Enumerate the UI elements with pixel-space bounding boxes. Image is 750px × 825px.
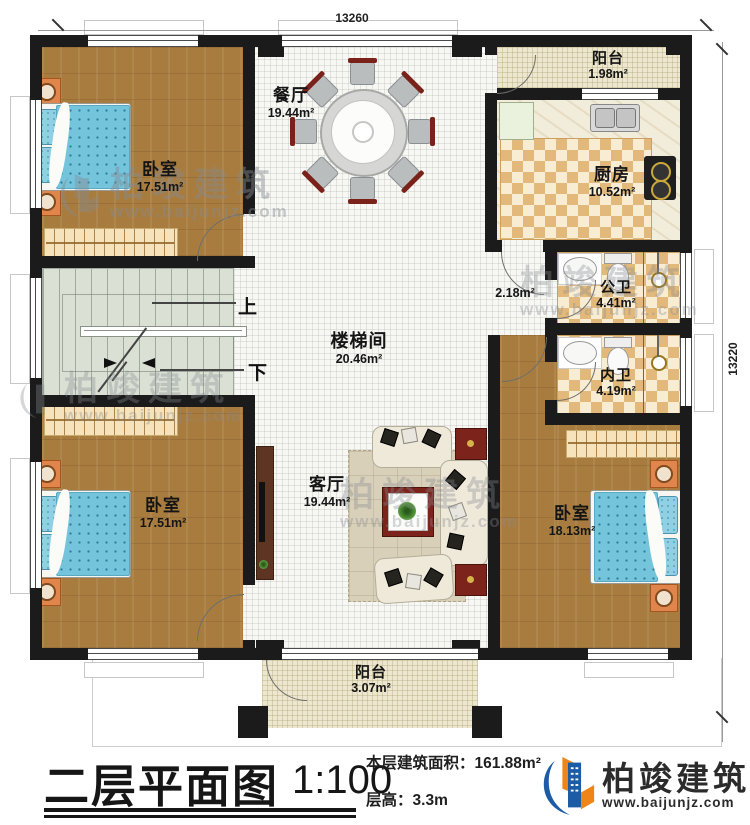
wall-segment (545, 400, 557, 413)
plant (259, 560, 268, 569)
wardrobe-rail (568, 442, 684, 444)
stove-burner (651, 162, 671, 182)
window-sill (694, 334, 714, 412)
window (582, 88, 658, 100)
floor-height-line: 层高：3.3m (366, 788, 448, 810)
window (30, 100, 42, 208)
fridge (499, 102, 534, 140)
dimension-line-right (722, 42, 723, 742)
stair-up-label: 上 (238, 292, 257, 319)
bedroom-br-floor (500, 335, 557, 648)
column (256, 640, 284, 660)
dimension-top-value: 13260 (322, 11, 382, 25)
room-label-bedroom-tl: 卧室 17.51m² (137, 160, 184, 194)
shower-divider (643, 252, 644, 323)
sink-basin (563, 257, 597, 281)
shower-divider (643, 335, 644, 413)
window (88, 35, 198, 47)
dining-table-center (352, 121, 374, 143)
wall-segment (658, 88, 692, 100)
shower-head (651, 272, 667, 288)
dining-chair (350, 177, 375, 200)
room-label-balcony-top: 阳台 1.98m² (588, 50, 628, 82)
room-label-corridor: 2.18m² (495, 286, 535, 300)
room-label-kitchen: 厨房 10.52m² (589, 165, 636, 199)
floor-height-label: 层高： (366, 792, 413, 809)
floor-area-line: 本层建筑面积：161.88m² (366, 751, 541, 773)
window (88, 648, 198, 660)
room-label-living: 客厅 19.44m² (304, 475, 351, 509)
window (588, 648, 668, 660)
wall-segment (485, 240, 502, 252)
sofa-pillow (447, 533, 465, 551)
kitchen-sink-basin (616, 108, 636, 128)
window-sill (10, 96, 30, 214)
wardrobe (44, 406, 178, 436)
column (258, 35, 284, 57)
dining-chair (294, 119, 317, 144)
floor-height-value: 3.3m (413, 792, 448, 809)
wardrobe-rail (46, 242, 174, 244)
wall-segment (488, 335, 500, 660)
window (30, 462, 42, 588)
side-table (455, 428, 487, 460)
dimension-right-value: 13220 (726, 329, 740, 389)
wall-segment (485, 93, 497, 252)
window-sill (84, 662, 204, 678)
column (452, 35, 482, 57)
stair-railing-line (84, 330, 242, 331)
dimension-line-top (38, 30, 714, 31)
room-label-bedroom-br: 卧室 18.13m² (549, 504, 596, 538)
tv (259, 482, 265, 542)
window (282, 648, 478, 660)
coffee-table-plant (398, 502, 416, 520)
stair-down-label: 下 (248, 358, 267, 385)
shower-stem (657, 335, 659, 357)
window (680, 338, 692, 406)
sofa-pillow (405, 573, 422, 590)
column (238, 706, 268, 738)
kitchen-sink-basin (595, 108, 615, 128)
wardrobe-rail (46, 419, 174, 421)
shower-head (651, 355, 667, 371)
stove-burner (651, 180, 671, 200)
wall-segment (243, 640, 255, 660)
side-table (455, 564, 487, 596)
wall-segment (545, 323, 692, 335)
nightstand (650, 460, 678, 488)
wall-segment (485, 35, 497, 55)
stair-arrow-line-down (160, 369, 244, 371)
floor-plan-page: 上 下 (0, 0, 750, 825)
room-label-dining: 餐厅 19.44m² (268, 86, 315, 120)
room-label-bedroom-bl: 卧室 17.51m² (140, 496, 187, 530)
shower-stem (657, 252, 659, 274)
window (282, 35, 452, 47)
stair-arrow-line-up (152, 302, 236, 304)
title-underline (44, 808, 356, 812)
window (680, 253, 692, 318)
room-label-stairwell: 楼梯间 20.46m² (331, 331, 388, 366)
stair-arrowhead (104, 358, 117, 368)
window (30, 278, 42, 378)
stair-railing (80, 326, 247, 337)
stair-arrowhead (142, 358, 155, 368)
wall-segment (243, 35, 255, 214)
window-sill (694, 249, 714, 324)
brand-name: 柏竣建筑 (602, 752, 750, 800)
wall-segment (545, 413, 692, 425)
plan-title: 二层平面图 (44, 750, 279, 815)
column (666, 35, 692, 55)
column (472, 706, 502, 738)
room-label-bath-public: 公卫 4.41m² (596, 279, 636, 311)
room-label-balcony-bottom: 阳台 3.07m² (351, 664, 391, 696)
floor-area-value: 161.88m² (475, 755, 541, 772)
window-sill (10, 274, 30, 384)
nightstand (650, 584, 678, 612)
wall-segment (543, 240, 692, 252)
wall-segment (545, 252, 557, 280)
wall-segment (243, 395, 255, 585)
room-label-bath-private: 内卫 4.19m² (596, 367, 636, 399)
dining-chair (350, 62, 375, 85)
brand-logo-icon (540, 750, 596, 825)
floor-area-label: 本层建筑面积： (366, 755, 475, 772)
window-sill (84, 20, 204, 35)
sofa-pillow (401, 427, 418, 444)
dining-chair (408, 119, 431, 144)
window-sill (10, 458, 30, 594)
wall-segment (30, 395, 255, 407)
wardrobe (566, 430, 688, 458)
brand-website: www.baijunjz.com (602, 795, 735, 810)
title-underline (44, 815, 356, 818)
window-sill (584, 662, 674, 678)
